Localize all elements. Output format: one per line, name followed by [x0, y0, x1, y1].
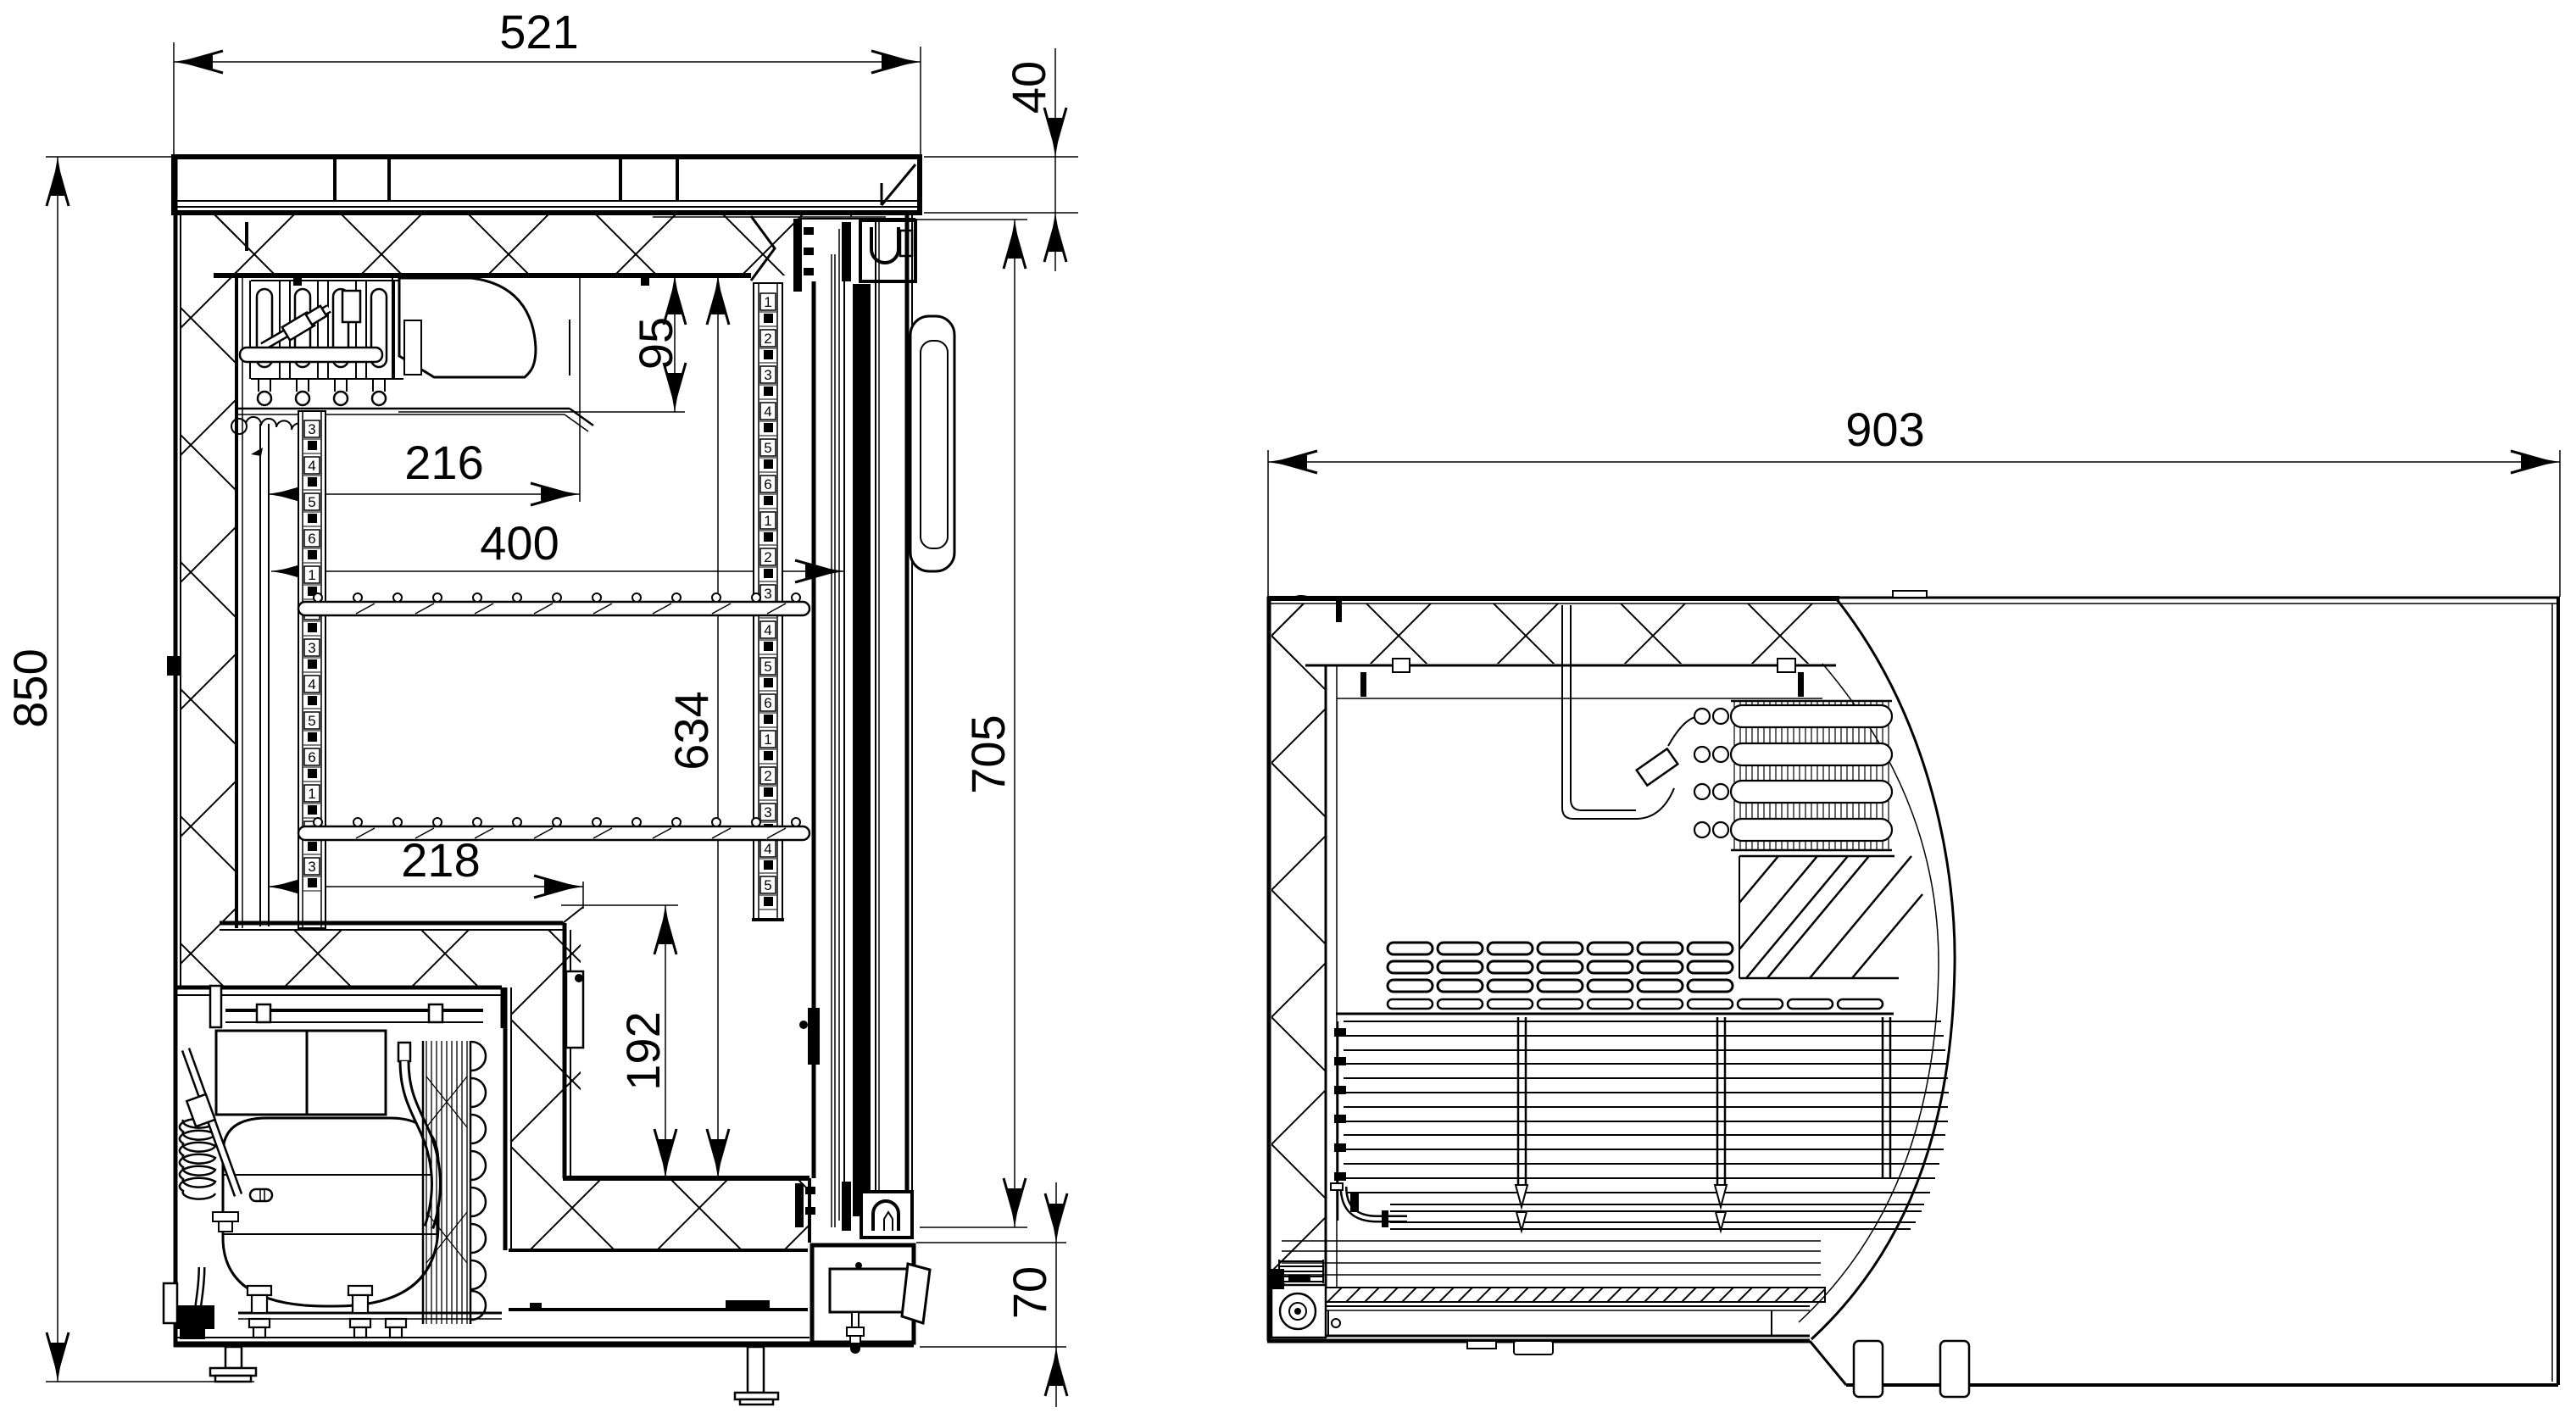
svg-text:1: 1: [764, 731, 771, 748]
svg-text:5: 5: [764, 659, 771, 675]
svg-text:6: 6: [764, 695, 771, 711]
svg-text:4: 4: [764, 841, 771, 857]
svg-text:40: 40: [1002, 61, 1055, 114]
svg-text:218: 218: [401, 833, 480, 887]
svg-text:3: 3: [764, 804, 771, 820]
svg-text:5: 5: [308, 494, 315, 510]
svg-text:6: 6: [308, 531, 315, 547]
svg-text:634: 634: [665, 691, 718, 770]
svg-text:216: 216: [404, 436, 483, 489]
svg-text:1: 1: [308, 786, 315, 802]
svg-text:6: 6: [764, 476, 771, 492]
svg-text:5: 5: [308, 713, 315, 729]
svg-text:70: 70: [1003, 1266, 1056, 1319]
svg-text:5: 5: [764, 440, 771, 456]
svg-text:95: 95: [629, 317, 682, 370]
svg-text:3: 3: [308, 421, 315, 437]
svg-text:4: 4: [764, 403, 771, 420]
svg-text:4: 4: [308, 458, 315, 474]
svg-text:521: 521: [499, 5, 578, 58]
svg-text:1: 1: [308, 567, 315, 583]
svg-text:4: 4: [764, 622, 771, 638]
svg-text:4: 4: [308, 676, 315, 693]
svg-text:3: 3: [764, 367, 771, 383]
svg-text:1: 1: [764, 513, 771, 529]
svg-text:400: 400: [480, 516, 559, 570]
svg-text:5: 5: [764, 877, 771, 893]
svg-text:3: 3: [764, 586, 771, 602]
svg-text:850: 850: [3, 648, 57, 727]
svg-text:3: 3: [308, 640, 315, 656]
svg-text:1: 1: [764, 294, 771, 310]
svg-text:705: 705: [961, 715, 1015, 793]
svg-text:2: 2: [764, 331, 771, 347]
svg-text:2: 2: [764, 768, 771, 784]
svg-text:903: 903: [1845, 403, 1924, 456]
svg-text:3: 3: [308, 859, 315, 875]
svg-text:2: 2: [764, 549, 771, 565]
svg-text:6: 6: [308, 749, 315, 765]
svg-text:192: 192: [616, 1011, 670, 1090]
